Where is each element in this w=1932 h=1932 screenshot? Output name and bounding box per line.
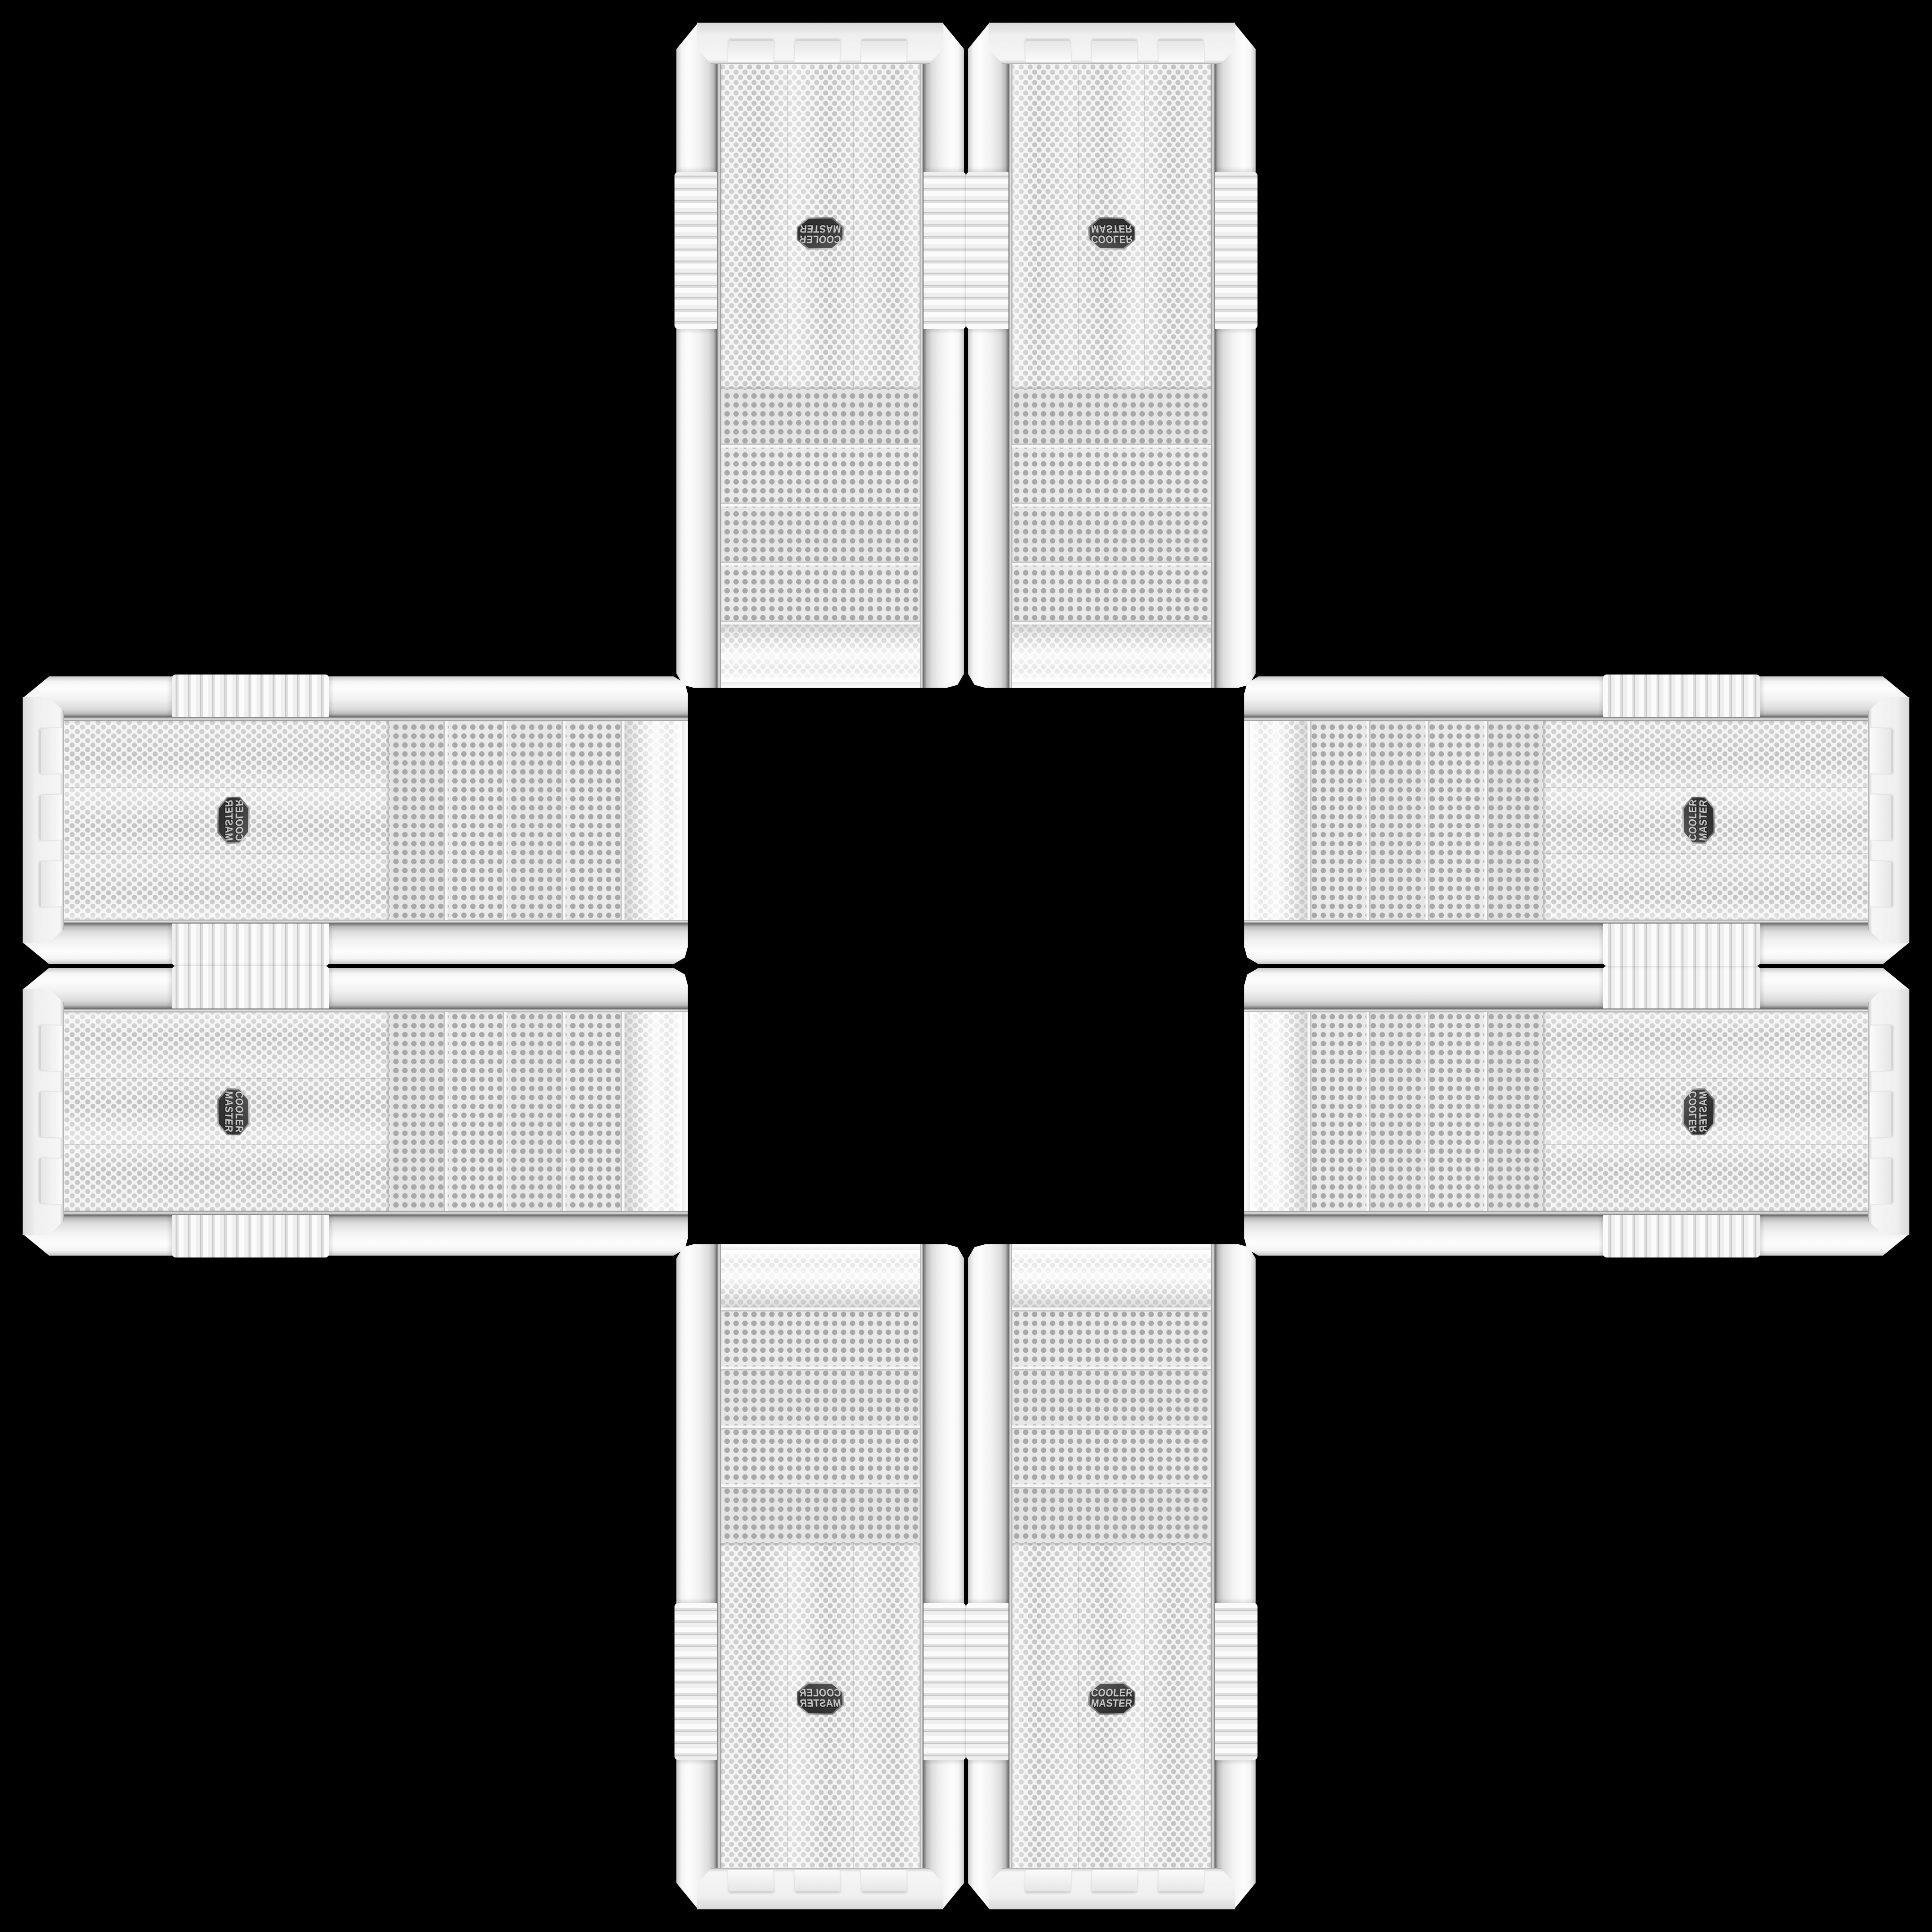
grip-ribs-right: [1603, 675, 1760, 719]
cooler-master-badge: COOLER MASTER: [1088, 1682, 1135, 1715]
drive-bay-cover: [1484, 721, 1543, 920]
bezel-tab: [1158, 1870, 1204, 1891]
pc-case: COOLER MASTER: [1240, 676, 1909, 964]
grip-ribs-left: [1603, 966, 1760, 1010]
grip-ribs-left: [1603, 922, 1760, 966]
bezel-tab: [1870, 1091, 1891, 1138]
badge-face: COOLER MASTER: [1684, 1090, 1713, 1134]
front-mesh: COOLER MASTER: [1543, 721, 1909, 920]
bottom-bezel: [1868, 989, 1909, 1235]
drive-bay-cover: [1484, 1012, 1543, 1211]
drive-bay-cover: [1366, 1012, 1425, 1211]
badge-face: COOLER MASTER: [1684, 798, 1713, 842]
badge-text-line2: MASTER: [1698, 799, 1709, 841]
chrome-trim-right: [1244, 717, 1869, 721]
top-bezel: [1244, 1012, 1250, 1211]
mesh-hood: [1250, 721, 1307, 920]
bezel-tab: [1870, 728, 1891, 774]
mesh-seam: [1543, 853, 1909, 854]
bezel-tab: [1870, 861, 1891, 907]
side-rail-left: [1244, 924, 1909, 964]
front-panel: COOLER MASTER: [1244, 717, 1909, 924]
mesh-seam: [1543, 1144, 1909, 1145]
mesh-seam: [1543, 787, 1909, 788]
badge-text-line1: COOLER: [1688, 799, 1699, 842]
product-collage: COOLER MASTER: [0, 0, 1932, 1932]
case-pair: COOLER MASTER: [1240, 676, 1909, 1256]
pc-case: COOLER MASTER: [1240, 968, 1909, 1256]
front-stack: COOLER MASTER: [1244, 1012, 1909, 1211]
chrome-trim-right: [1211, 1244, 1215, 1869]
front-mesh: COOLER MASTER: [1543, 1012, 1909, 1211]
cooler-master-badge: COOLER MASTER: [1682, 1088, 1715, 1135]
bezel-tab: [1870, 794, 1891, 841]
top-bezel: [1244, 721, 1250, 920]
drive-bay-cover: [1307, 1012, 1366, 1211]
chrome-trim-left: [1244, 1008, 1869, 1012]
drive-bay-cover: [1425, 721, 1484, 920]
chrome-trim-left: [1244, 920, 1869, 924]
badge-text-line1: COOLER: [1091, 1688, 1133, 1699]
badge-face: COOLER MASTER: [1090, 1684, 1134, 1713]
bezel-tab: [1870, 1025, 1891, 1071]
front-panel: COOLER MASTER: [1244, 1008, 1909, 1215]
bezel-tab: [1025, 1870, 1071, 1891]
drive-bay-cover: [1425, 1012, 1484, 1211]
side-rail-right: [1244, 676, 1909, 717]
side-rail-left: [1244, 968, 1909, 1008]
chrome-trim-right: [1244, 1211, 1869, 1215]
badge-text-line2: MASTER: [1091, 1698, 1133, 1709]
mesh-seam: [1543, 1078, 1909, 1079]
badge-text-line1: COOLER: [1688, 1091, 1699, 1133]
bezel-tab: [1091, 1870, 1138, 1891]
cooler-master-badge: COOLER MASTER: [1682, 797, 1715, 844]
grip-ribs-right: [1603, 1213, 1760, 1257]
bezel-tab: [1870, 1158, 1891, 1204]
side-rail-right: [1244, 1215, 1909, 1256]
badge-text-line2: MASTER: [1698, 1091, 1709, 1133]
chrome-trim-left: [1008, 1244, 1012, 1869]
grip-ribs-right: [1213, 1603, 1257, 1760]
bottom-bezel: [989, 1868, 1235, 1909]
drive-bay-cover: [1307, 721, 1366, 920]
mesh-hood: [1250, 1012, 1307, 1211]
front-stack: COOLER MASTER: [1244, 721, 1909, 920]
bottom-bezel: [1868, 697, 1909, 943]
grip-ribs-left: [966, 1603, 1010, 1760]
drive-bay-cover: [1366, 721, 1425, 920]
